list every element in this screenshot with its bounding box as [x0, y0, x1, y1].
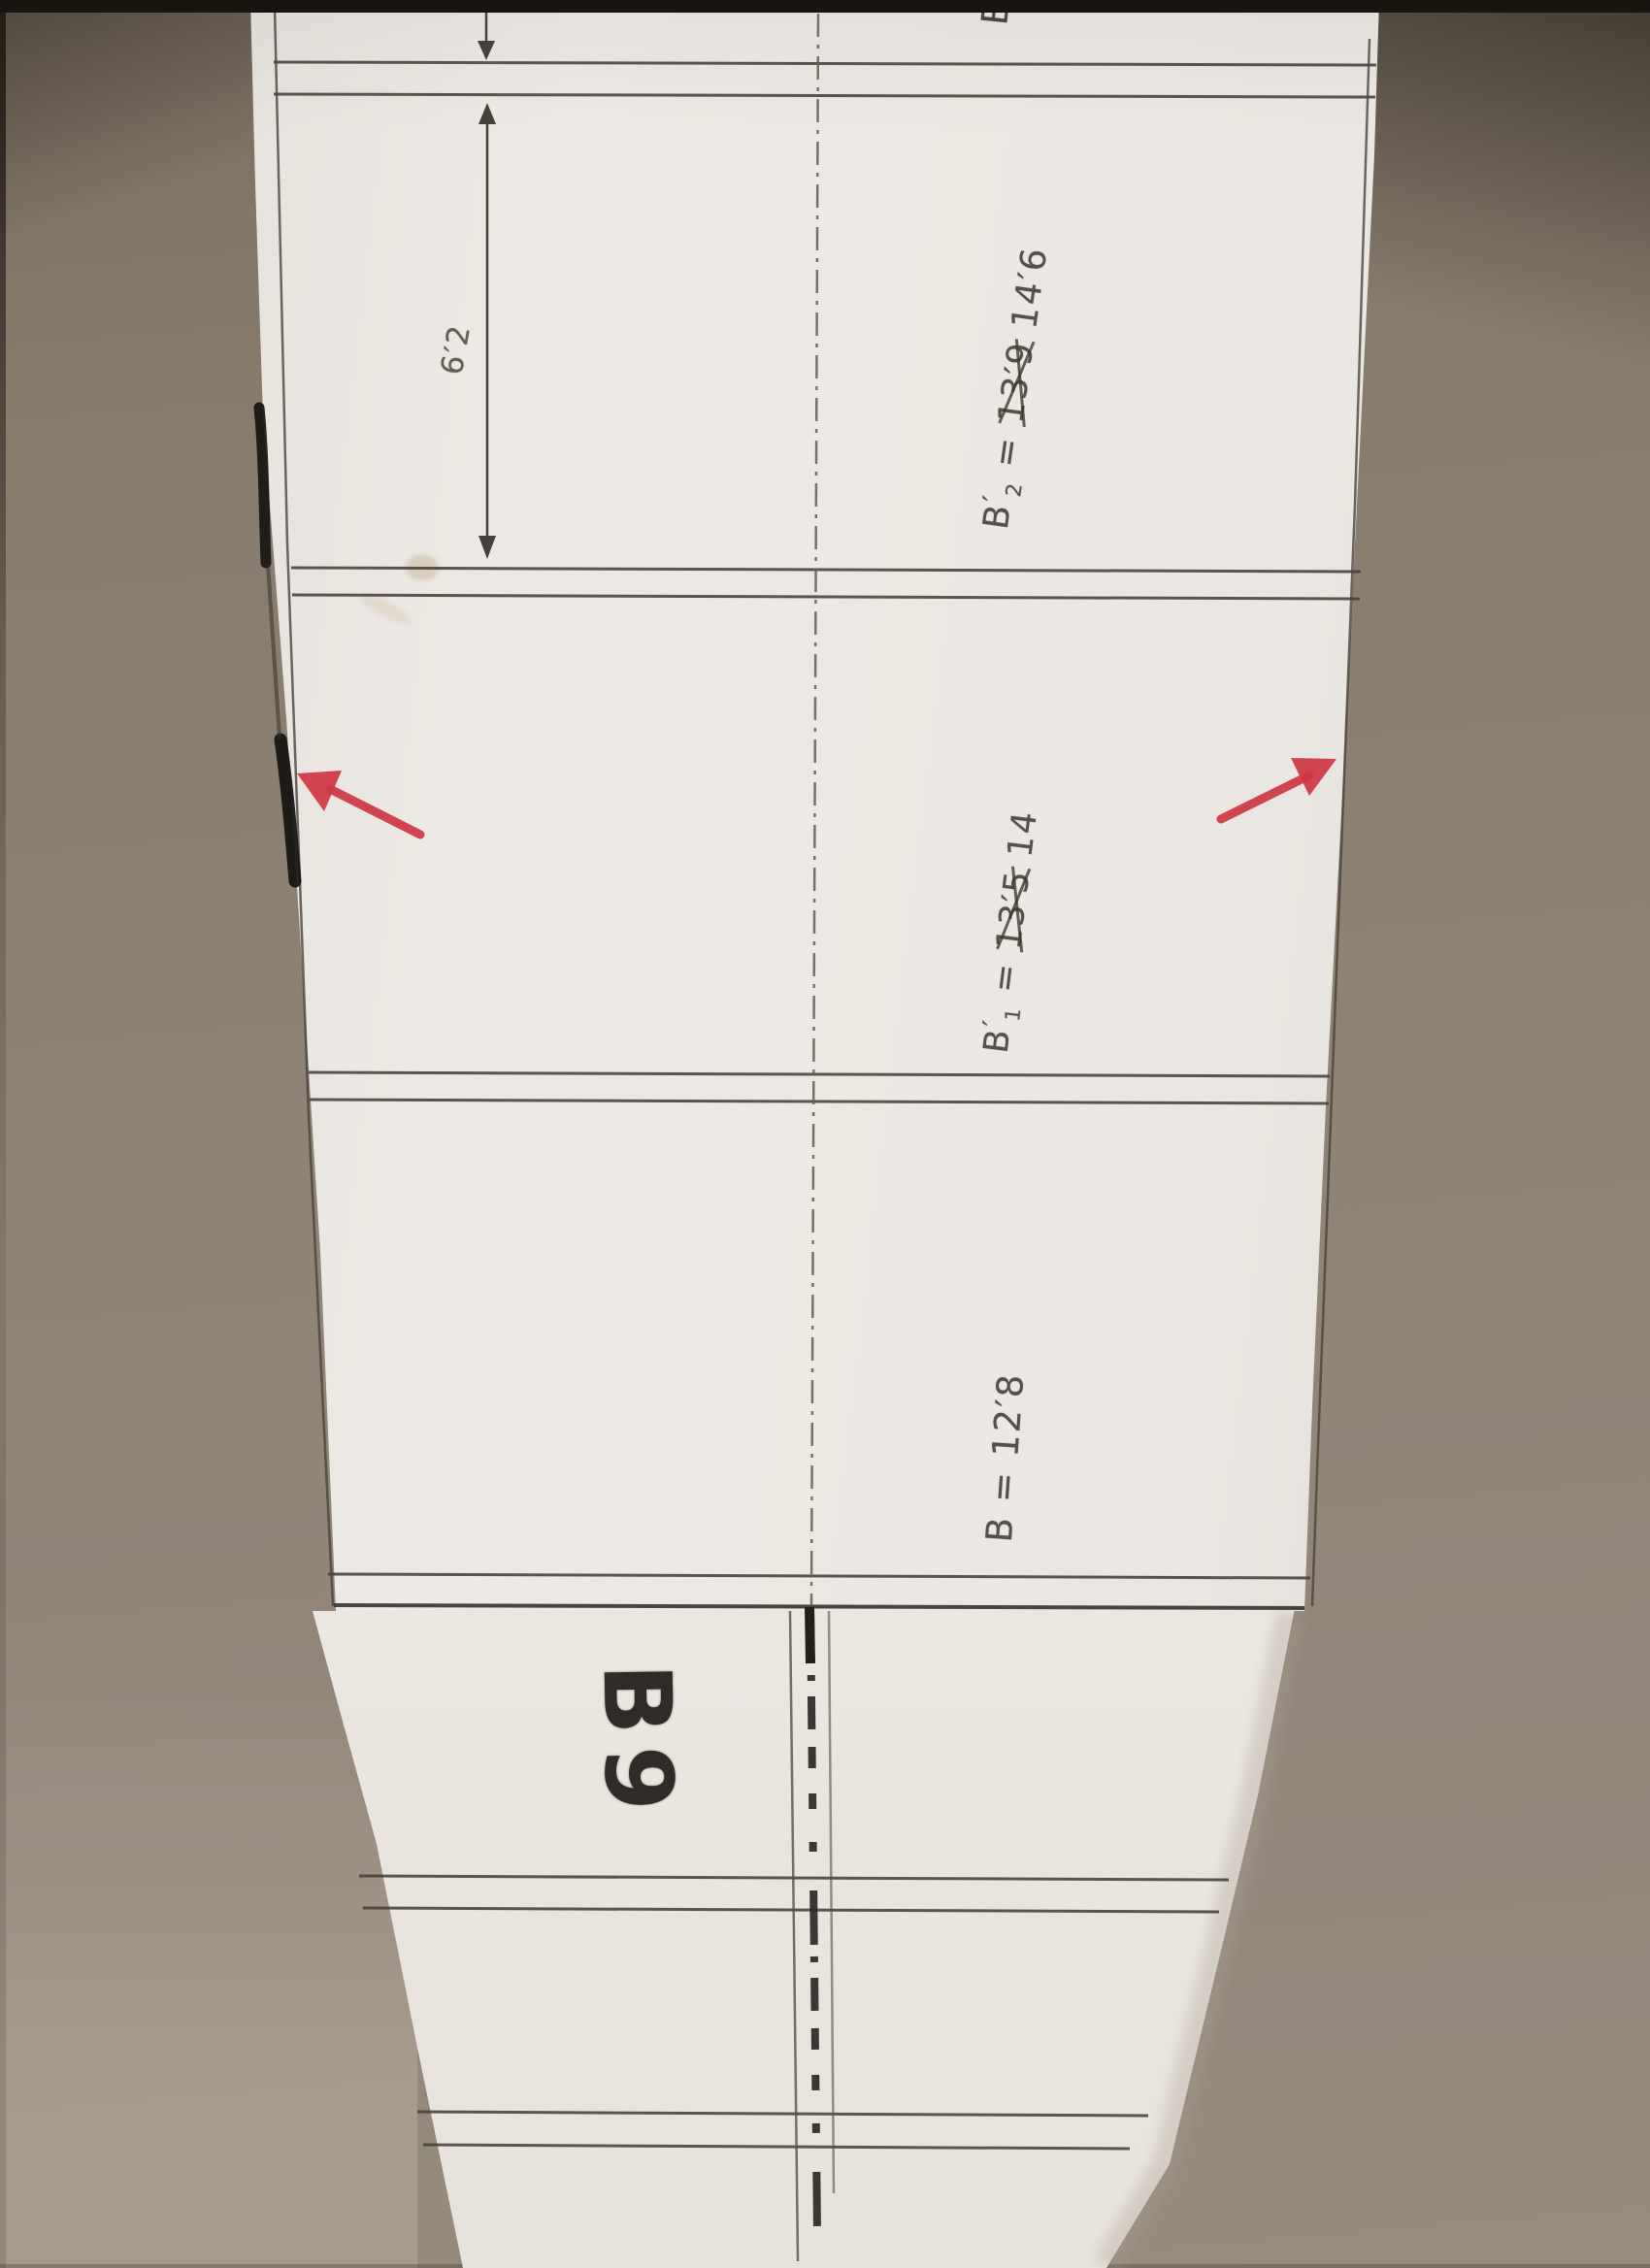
measurement-b1-equals: =	[984, 960, 1027, 995]
scanned-pattern-sheet: B′2 = 13′9 14′6 B′1 = 13′5 14 B = 12′8 6…	[0, 0, 1650, 2268]
measurement-b2-value: 14′6	[1005, 245, 1055, 332]
scan-edge-top	[0, 0, 1650, 13]
divider-lines	[274, 62, 1376, 2149]
red-arrow-left	[297, 771, 420, 835]
red-arrow-right	[1221, 758, 1336, 819]
measurement-b1-symbol: B′1	[977, 1003, 1022, 1055]
center-fold-line	[811, 14, 818, 1605]
edge-ink-streaks	[259, 408, 295, 881]
pattern-linework	[0, 0, 1650, 2268]
margin-lines	[275, 8, 1369, 1606]
strip-center-lines	[790, 1607, 834, 2261]
measurement-b-symbol: B	[978, 1514, 1022, 1543]
measurement-b2-symbol: B′2	[976, 477, 1023, 532]
measurement-b-value: 12′8	[984, 1371, 1032, 1459]
measurement-b2-equals: =	[985, 433, 1029, 470]
strip-edge-shadow	[1107, 1613, 1291, 2265]
measurement-b1-struck-value: 13′5	[990, 868, 1039, 952]
measurement-b2-struck-value: 13′9	[991, 339, 1041, 426]
paper-stain	[357, 555, 439, 630]
measurement-b1-value: 14	[1001, 807, 1045, 859]
piece-id-label: B9	[582, 1662, 694, 1824]
measurement-b-equals: =	[981, 1469, 1025, 1504]
